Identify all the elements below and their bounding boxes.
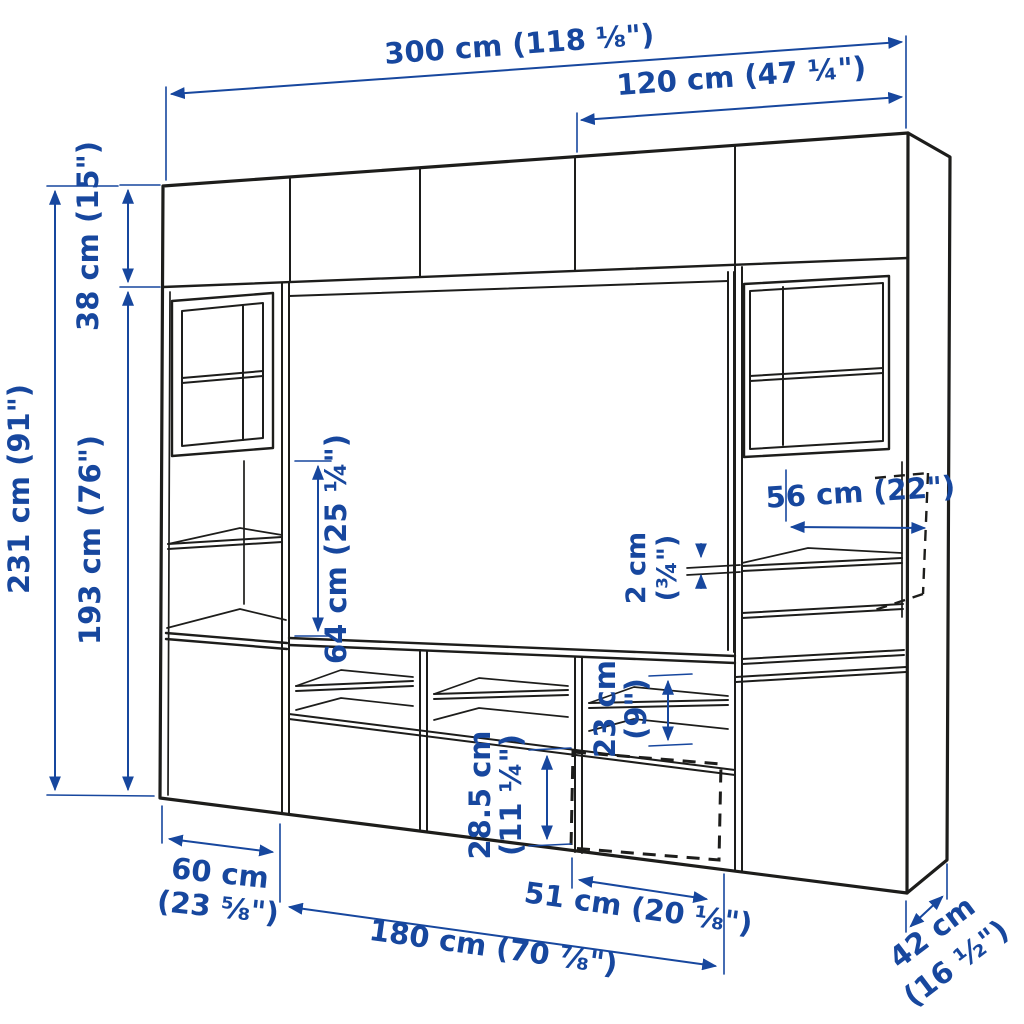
label-drawer-front-height-cm: 28.5 cm [463, 730, 497, 859]
diagram-page: 300 cm (118 ⅛") 120 cm (47 ¼") 38 cm (15… [0, 0, 1024, 1024]
dim-total-width: 300 cm (118 ⅛") [166, 17, 906, 180]
label-total-height: 231 cm (91") [2, 384, 36, 594]
left-glass-door [172, 293, 273, 456]
dim-tv-opening-height: 64 cm (25 ¼") [295, 434, 353, 664]
bench-shelf-compartment-1 [296, 670, 413, 710]
label-shelf-thickness-cm: 2 cm [621, 532, 652, 604]
left-column [166, 283, 289, 813]
bench-shelf-compartment-2 [434, 678, 568, 720]
right-door-top [736, 667, 906, 682]
left-open-shelves [166, 461, 287, 649]
label-open-compartment-height-in: (9") [619, 678, 653, 740]
drawer-dashed-outline [571, 752, 721, 860]
label-tv-bench-width: 180 cm (70 ⅞") [367, 913, 620, 981]
dimension-annotations: 300 cm (118 ⅛") 120 cm (47 ¼") 38 cm (15… [2, 17, 1015, 1013]
cabinet-outline [160, 133, 950, 893]
dim-shelf-width: 56 cm (22") [765, 469, 957, 528]
dim-lower-section-height: 193 cm (76") [73, 293, 128, 789]
label-shelf-width: 56 cm (22") [765, 469, 957, 515]
dim-top-cabinet-height: 38 cm (15") [71, 141, 160, 331]
furniture-dimension-diagram: 300 cm (118 ⅛") 120 cm (47 ¼") 38 cm (15… [0, 0, 1024, 1024]
label-right-section-width: 120 cm (47 ¼") [615, 50, 867, 102]
dim-depth: 42 cm (16 ½") [883, 864, 1015, 1013]
label-drawer-front-height-in: (11 ¼") [494, 734, 528, 856]
right-glass-door [744, 276, 889, 457]
label-lower-section-height: 193 cm (76") [73, 435, 107, 645]
label-drawer-width: 51 cm (20 ⅛") [522, 875, 755, 941]
label-top-cabinet-height: 38 cm (15") [71, 141, 105, 331]
label-shelf-thickness-in: (¾") [652, 535, 683, 602]
dim-left-cabinet-width: 60 cm (23 ⅝") [156, 806, 281, 930]
label-open-compartment-height-cm: 23 cm [588, 660, 622, 758]
label-tv-opening-height: 64 cm (25 ¼") [319, 434, 353, 664]
right-column [687, 266, 928, 872]
dim-drawer-front-height: 28.5 cm (11 ¼") [463, 730, 571, 859]
front-right-edge [907, 133, 908, 893]
top-cabinet-row [163, 146, 908, 287]
cabinet-line-drawing [160, 133, 950, 893]
dim-open-compartment-height: 23 cm (9") [588, 660, 692, 758]
